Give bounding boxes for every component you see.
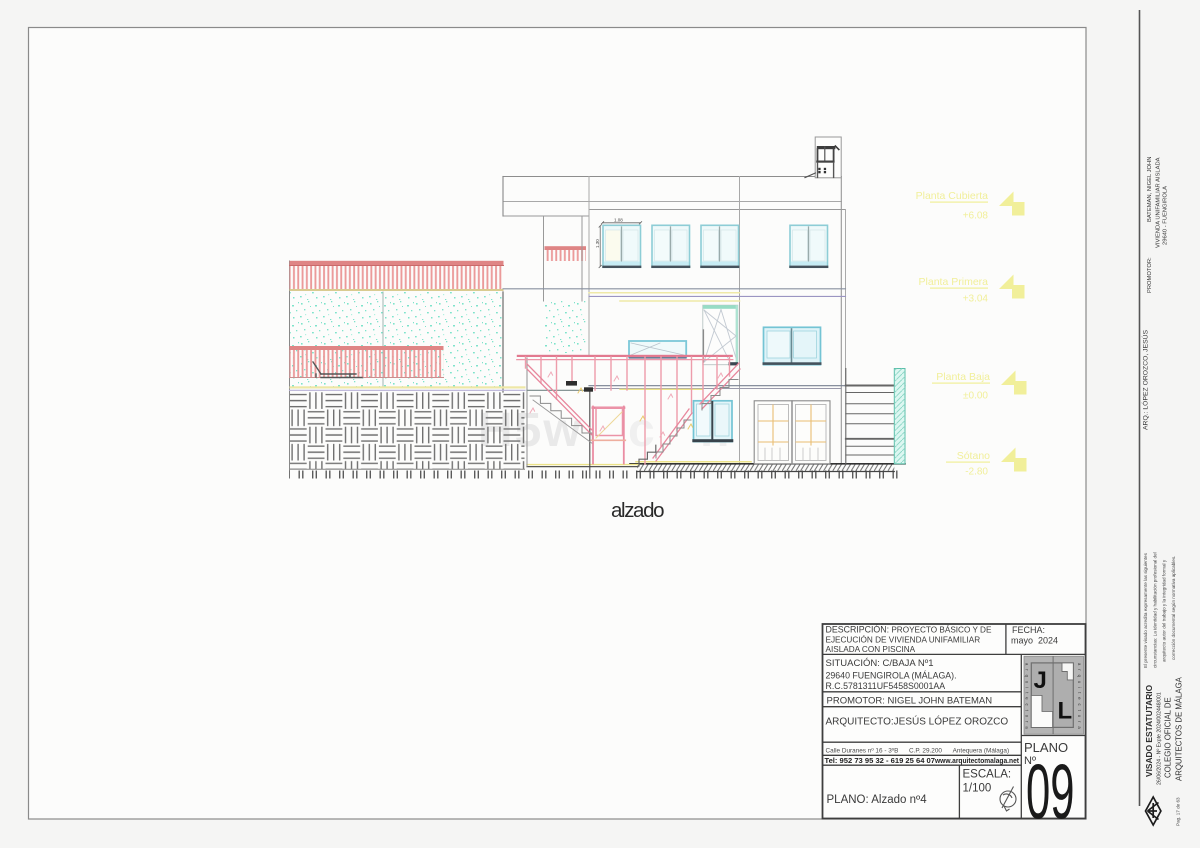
svg-text:El presente visado acredita ex: El presente visado acredita expresamente… xyxy=(1143,552,1148,668)
svg-text:1/100: 1/100 xyxy=(963,783,992,795)
svg-text:mayo 2024: mayo 2024 xyxy=(1011,636,1058,646)
svg-text:Sótano: Sótano xyxy=(957,450,990,462)
svg-text:PROMOTOR: NIGEL JOHN BATEMAN: PROMOTOR: NIGEL JOHN BATEMAN xyxy=(827,696,993,707)
svg-text:arquitecto autor del trabajo y: arquitecto autor del trabajo y la integr… xyxy=(1162,559,1167,662)
svg-text:AISLADA CON PISCINA: AISLADA CON PISCINA xyxy=(826,645,916,654)
svg-text:1.30: 1.30 xyxy=(595,239,600,248)
svg-text:R.C.5781311UF5458S0001AA: R.C.5781311UF5458S0001AA xyxy=(826,681,946,691)
svg-text:Planta Cubierta: Planta Cubierta xyxy=(916,190,989,202)
svg-text:09: 09 xyxy=(1026,747,1075,835)
svg-text:alzado: alzado xyxy=(611,499,665,522)
svg-text:PLANO: Alzado nº4: PLANO: Alzado nº4 xyxy=(827,794,928,806)
svg-text:COLEGIO OFICIAL DE: COLEGIO OFICIAL DE xyxy=(1164,697,1173,778)
svg-text:corrección documental según no: corrección documental según normativa ap… xyxy=(1171,556,1176,660)
svg-text:Calle Duranes nº 16 - 3ºB: Calle Duranes nº 16 - 3ºB C.P. 29.200 An… xyxy=(826,748,1010,755)
svg-text:1.08: 1.08 xyxy=(614,218,623,223)
svg-text:ARQUITECTO:JESÚS LÓPEZ OROZCO: ARQUITECTO:JESÚS LÓPEZ OROZCO xyxy=(826,715,1009,728)
svg-text:+3.04: +3.04 xyxy=(963,294,989,305)
svg-text:29640 - FUENGIROLA: 29640 - FUENGIROLA xyxy=(1163,186,1169,245)
svg-text:ARQUITECTOS DE MÁLAGA: ARQUITECTOS DE MÁLAGA xyxy=(1175,676,1184,781)
svg-text:J: J xyxy=(1034,667,1047,694)
svg-text:Tel: 952 73 95 32 - 619 25 64: Tel: 952 73 95 32 - 619 25 64 07 xyxy=(825,756,935,765)
svg-text:a r q u i t e c t u r a: a r q u i t e c t u r a xyxy=(1025,663,1030,730)
svg-text:DESCRIPCIÓN: PROYECTO BÁSICO Y: DESCRIPCIÓN: PROYECTO BÁSICO Y DE xyxy=(826,625,992,635)
svg-text:FECHA:: FECHA: xyxy=(1012,625,1045,635)
svg-text:ARQ.: LÓPEZ OROZCO, JESÚS: ARQ.: LÓPEZ OROZCO, JESÚS xyxy=(1141,329,1150,430)
svg-text:L: L xyxy=(1058,698,1073,725)
svg-text:ESCALA:: ESCALA: xyxy=(963,769,1012,781)
svg-text:SITUACIÓN: C/BAJA Nº1: SITUACIÓN: C/BAJA Nº1 xyxy=(826,658,934,669)
svg-text:26/06/2024 - Nº Expte 2024/002: 26/06/2024 - Nº Expte 2024/002448/001 xyxy=(1157,692,1163,785)
svg-text:VISADO ESTATUTARIO: VISADO ESTATUTARIO xyxy=(1144,684,1154,777)
svg-text:Pag. 17 de 63: Pag. 17 de 63 xyxy=(1176,797,1181,826)
svg-text:Planta Baja: Planta Baja xyxy=(936,371,990,383)
svg-text:+6.08: +6.08 xyxy=(963,211,989,222)
svg-text:BATEMAN, NIGEL JOHN: BATEMAN, NIGEL JOHN xyxy=(1147,157,1153,222)
svg-text:c: c xyxy=(628,404,655,457)
svg-text:±0.00: ±0.00 xyxy=(963,391,988,402)
svg-text:circunstancias: La identidad y: circunstancias: La identidad y habilitac… xyxy=(1152,552,1157,668)
svg-text:PROMOTOR:: PROMOTOR: xyxy=(1147,257,1153,293)
svg-text:Planta Primera: Planta Primera xyxy=(919,276,989,288)
svg-text:EJECUCIÓN DE VIVIENDA UNIFAMIL: EJECUCIÓN DE VIVIENDA UNIFAMILIAR xyxy=(826,635,981,645)
svg-text:a r q u i t e c t u r a: a r q u i t e c t u r a xyxy=(1077,663,1082,730)
svg-text:VIVIENDA UNIFAMILIAR AISLADA: VIVIENDA UNIFAMILIAR AISLADA xyxy=(1156,157,1162,248)
svg-text:www.arquitectomalaga.net: www.arquitectomalaga.net xyxy=(934,756,1019,765)
svg-text:29640 FUENGIROLA (MÁLAGA).: 29640 FUENGIROLA (MÁLAGA). xyxy=(826,671,957,681)
svg-text:-2.80: -2.80 xyxy=(965,467,988,478)
